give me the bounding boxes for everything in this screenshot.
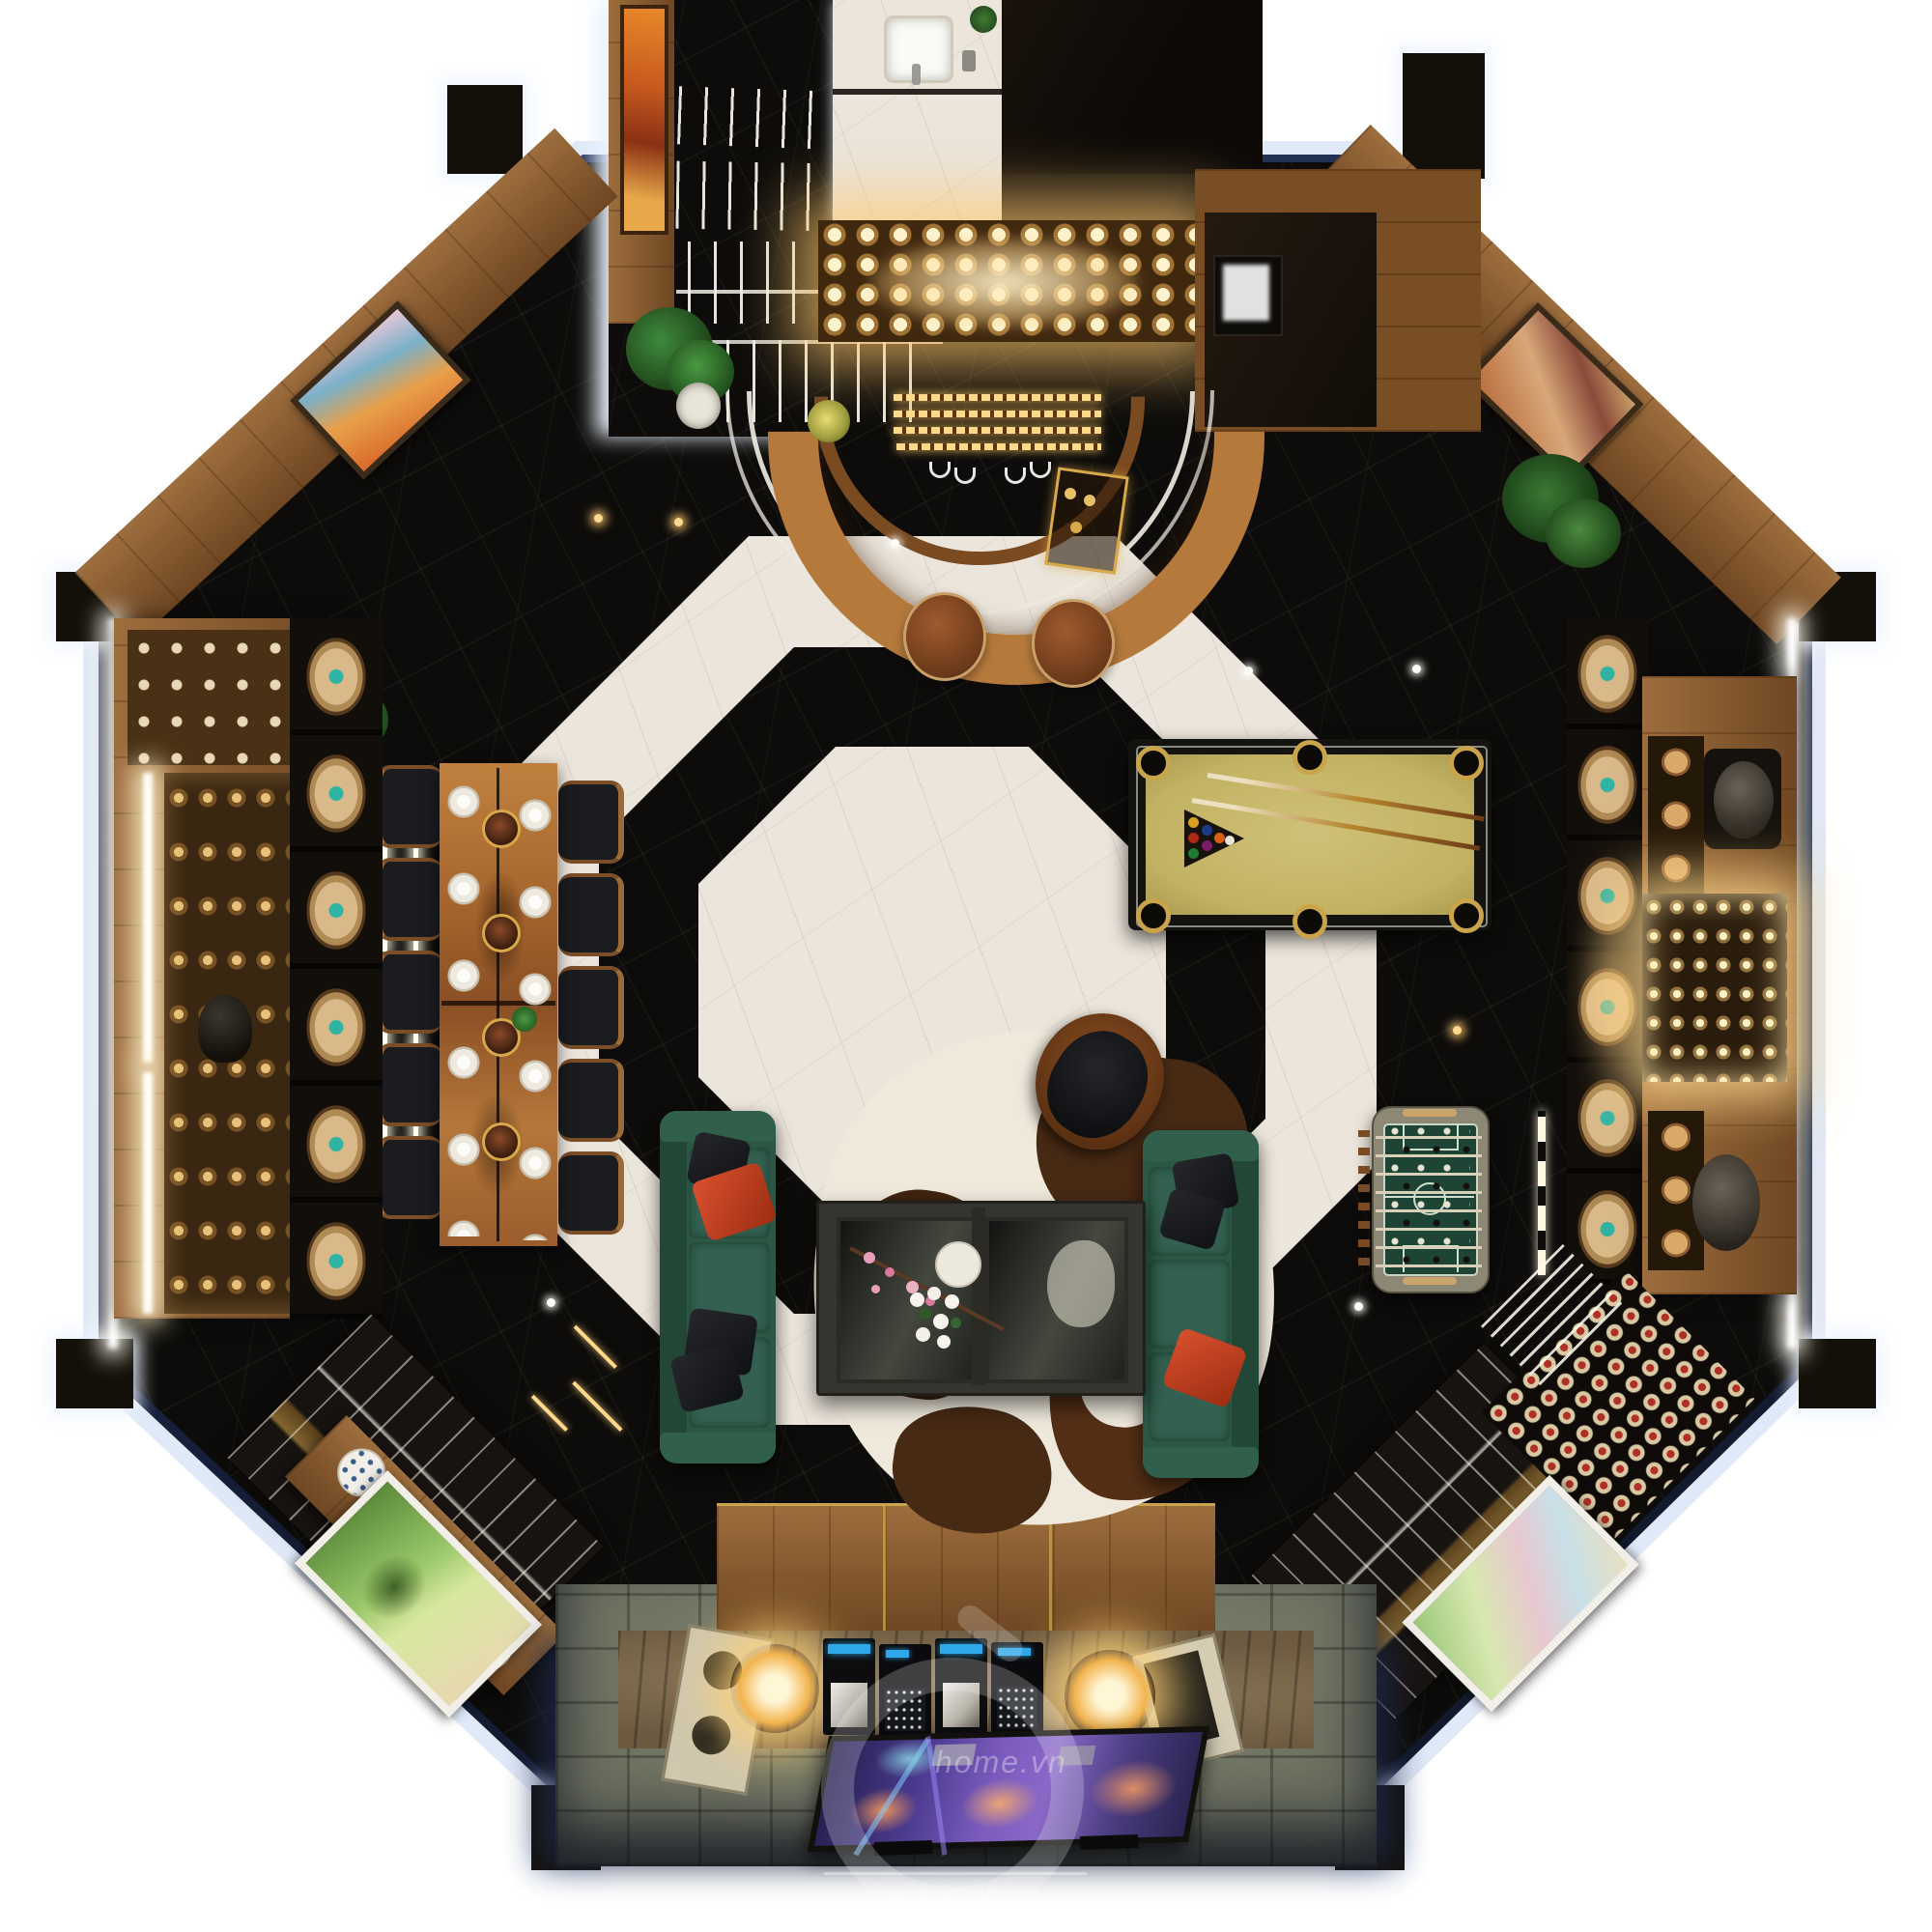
- bottle-row-3: [894, 427, 1101, 434]
- wall-stub-topleft: [447, 85, 523, 174]
- wall-lamp-glow-left: [730, 1644, 819, 1733]
- east-egg-jars-top: [1648, 736, 1704, 895]
- sofa-arm: [660, 1433, 776, 1463]
- tv-leg: [1080, 1834, 1138, 1850]
- cart-bottle: [1065, 488, 1076, 499]
- sofa-back: [660, 1111, 687, 1463]
- pink-blossom: [885, 1267, 895, 1277]
- light-dash: [531, 1395, 568, 1432]
- backbar-glow-core: [869, 237, 1140, 328]
- billiard-ball: [1188, 833, 1199, 843]
- copper-pendant-lamp: [482, 1122, 521, 1161]
- white-flower: [916, 1327, 930, 1342]
- stair-balusters-row1: [677, 86, 834, 150]
- render-canvas: home.vn home & interior: [0, 0, 1932, 1932]
- downlight-reflection: [547, 1298, 555, 1307]
- plant-bar-pot: [676, 383, 721, 429]
- sofa-right: [1143, 1130, 1259, 1478]
- leaf: [951, 1318, 961, 1328]
- cart-bottle: [1084, 495, 1095, 506]
- plate-row-left: [442, 773, 485, 1236]
- dining-chair: [558, 1151, 624, 1235]
- amp-screen: [828, 1644, 870, 1654]
- coffee-table: [816, 1201, 1146, 1396]
- billiard-ball: [1188, 817, 1199, 828]
- bottle-row-1: [894, 394, 1101, 401]
- glass-reflection-cow-patch: [1047, 1240, 1115, 1327]
- closet-block: [1002, 0, 1263, 176]
- copper-pendant-lamp: [482, 914, 521, 952]
- pool-pocket: [1136, 746, 1171, 781]
- bottle-row-4: [896, 443, 1101, 450]
- west-cabinet-led: [143, 773, 153, 1063]
- foosball-handles: [1358, 1130, 1370, 1265]
- plant-ne-leaves: [1546, 498, 1621, 568]
- stair-balusters-row2: [675, 161, 833, 232]
- warm-ceiling-light: [1453, 1026, 1462, 1035]
- dining-chair: [377, 1136, 442, 1219]
- dining-chair: [558, 781, 624, 864]
- table-center-beam: [972, 1207, 985, 1385]
- watermark-divider-line: [824, 1872, 1087, 1875]
- dining-chair: [377, 858, 442, 941]
- pool-pocket: [1136, 898, 1171, 933]
- closet-gap-floor: [1002, 174, 1195, 224]
- east-wall-light-dashes: [1538, 1111, 1546, 1275]
- glass-panel: [985, 1217, 1128, 1383]
- foosball-players: [1387, 1126, 1470, 1267]
- white-flower-bouquet: [906, 1285, 970, 1356]
- warm-ceiling-light: [594, 514, 603, 523]
- table-plant: [512, 1007, 537, 1032]
- east-statue-urn: [1714, 761, 1774, 838]
- stage-warm-spot: [1084, 1758, 1182, 1818]
- dining-chair: [558, 966, 624, 1049]
- bottle-row-2: [894, 411, 1101, 417]
- east-glow-spill: [1573, 898, 1650, 1082]
- downlight-reflection: [1354, 1302, 1363, 1311]
- cart-bottle: [1070, 522, 1082, 533]
- warm-ceiling-light: [674, 518, 683, 526]
- dining-chair: [377, 951, 442, 1034]
- sink-faucet: [912, 64, 921, 85]
- dining-chair: [558, 1059, 624, 1142]
- light-dash: [572, 1381, 622, 1432]
- pool-pocket: [1293, 740, 1327, 775]
- bar-stool-left: [903, 592, 986, 681]
- billiard-ball: [1202, 840, 1212, 851]
- downlight-reflection: [1244, 667, 1253, 675]
- closet-stub: [1403, 53, 1485, 179]
- white-flower: [937, 1335, 951, 1349]
- decorative-plate: [935, 1241, 981, 1288]
- tall-orange-artwork: [620, 5, 668, 235]
- west-cabinet-led: [143, 1072, 153, 1314]
- pool-pocket: [1293, 904, 1327, 939]
- billiard-ball: [1225, 836, 1235, 845]
- wall-stub-left-lower: [56, 1339, 133, 1408]
- white-flower: [927, 1287, 941, 1300]
- copper-pendant-lamp: [482, 810, 521, 848]
- speaker-woofer: [689, 1713, 733, 1757]
- foosball-end-handle: [1403, 1277, 1457, 1285]
- white-flower: [910, 1293, 924, 1307]
- white-flower: [945, 1294, 959, 1309]
- gold-bar-cart: [1044, 467, 1128, 574]
- watermark-caption: home & interior: [824, 1882, 1087, 1904]
- sofa-arm: [1143, 1447, 1259, 1478]
- sofa-left: [660, 1111, 776, 1463]
- billiard-ball: [1188, 848, 1199, 859]
- downlight-reflection: [891, 539, 899, 548]
- black-vase: [198, 995, 252, 1063]
- bathroom-plant: [970, 6, 997, 33]
- bar-stool-right: [1032, 599, 1115, 688]
- white-flower: [933, 1314, 949, 1329]
- fridge-light: [1223, 265, 1269, 321]
- west-jar-rack: [290, 618, 383, 1319]
- dining-chair: [377, 1043, 442, 1126]
- pink-blossom: [864, 1252, 875, 1264]
- amp-screen: [886, 1650, 909, 1658]
- bar-flower-centerpiece: [808, 400, 850, 442]
- dining-chair: [377, 765, 442, 848]
- soap-bottle: [962, 50, 976, 71]
- east-statue-jug: [1692, 1154, 1760, 1251]
- amp-screen: [940, 1644, 982, 1654]
- billiard-ball: [1202, 825, 1212, 836]
- pool-pocket: [1449, 898, 1484, 933]
- foosball-end-handle: [1403, 1109, 1457, 1117]
- bathroom-counter-divider: [833, 89, 1002, 95]
- watermark-brand: home.vn: [935, 1745, 1067, 1780]
- pink-blossom: [871, 1285, 880, 1293]
- pool-pocket: [1449, 746, 1484, 781]
- dining-chair: [558, 873, 624, 956]
- east-glow-shelf: [1642, 894, 1787, 1082]
- sofa-arm: [1143, 1130, 1259, 1161]
- downlight-reflection: [1412, 665, 1421, 673]
- wall-stub-right-lower: [1799, 1339, 1876, 1408]
- billiard-ball: [1214, 833, 1225, 843]
- leaf: [920, 1308, 931, 1320]
